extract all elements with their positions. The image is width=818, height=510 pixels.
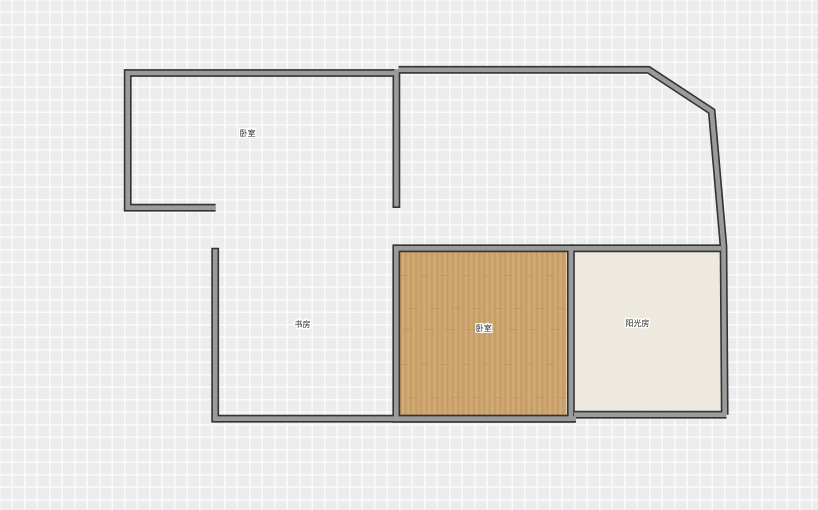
svg-text:阳光房: 阳光房 (625, 318, 649, 328)
svg-text:书房: 书房 (295, 319, 311, 329)
svg-text:卧室: 卧室 (476, 323, 492, 333)
svg-text:卧室: 卧室 (240, 128, 256, 138)
